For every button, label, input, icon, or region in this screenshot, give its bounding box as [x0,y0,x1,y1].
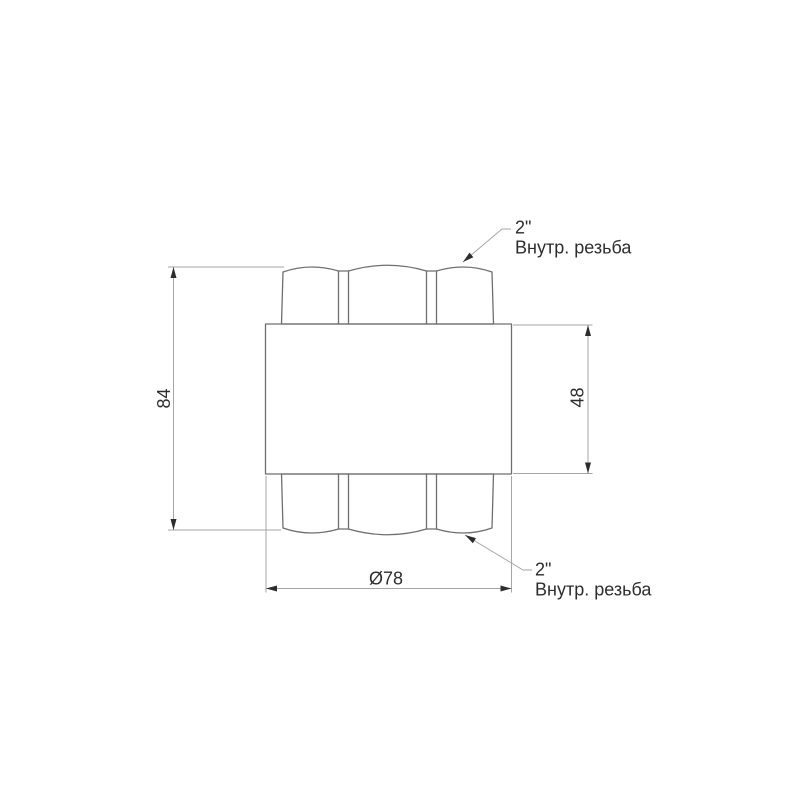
callout-top-size-label: 2" [515,218,531,238]
dimension-diameter-value: Ø78 [369,569,403,589]
technical-drawing-canvas: 84 48 Ø78 2" [0,0,800,800]
callout-bottom-size-label: 2" [535,560,551,580]
dimension-total-height-value: 84 [154,388,174,408]
callout-top-thread-label: Внутр. резьба [515,238,632,258]
drawing-page: 84 48 Ø78 2" [0,0,800,800]
dimension-body-height-value: 48 [568,387,588,407]
callout-bottom-thread-label: Внутр. резьба [535,580,652,600]
drawing-background [0,0,800,800]
